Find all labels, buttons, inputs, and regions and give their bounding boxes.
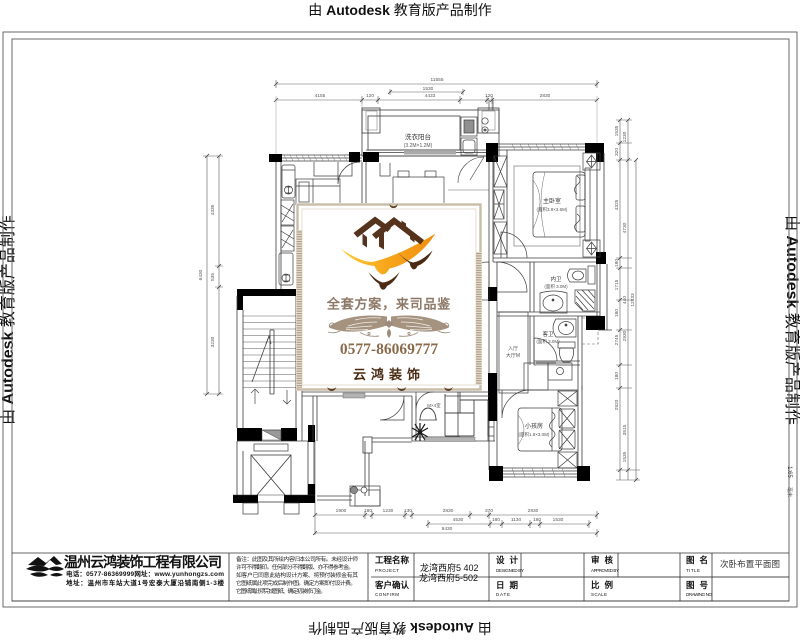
svg-text:DATE: DATE (496, 592, 510, 597)
svg-text:3230: 3230 (210, 336, 216, 347)
svg-text:许可不得翻印。任何部分不得翻版、亦不得参考金。: 许可不得翻印。任何部分不得翻版、亦不得参考金。 (236, 563, 354, 571)
svg-text:4730: 4730 (622, 222, 628, 233)
svg-text:(面积 3.0M): (面积 3.0M) (536, 338, 560, 345)
svg-text:(面积 3.0M): (面积 3.0M) (544, 283, 568, 290)
svg-text:180: 180 (492, 517, 500, 523)
svg-text:主卧室: 主卧室 (543, 197, 561, 205)
svg-text:TITLE: TITLE (686, 568, 700, 573)
svg-text:2930: 2930 (528, 508, 539, 514)
svg-text:它图纸属此项完成后制作图。确定方案即付设计费。: 它图纸属此项完成后制作图。确定方案即付设计费。 (236, 579, 356, 587)
svg-text:龙湾西府5-502: 龙湾西府5-502 (419, 572, 478, 583)
svg-text:180: 180 (614, 259, 620, 267)
svg-text:大厅M: 大厅M (506, 352, 520, 359)
svg-text:设 计: 设 计 (496, 555, 518, 565)
svg-text:(3.2M×1.2M): (3.2M×1.2M) (404, 143, 433, 149)
svg-text:1715: 1715 (614, 279, 620, 290)
svg-text:2920: 2920 (614, 399, 620, 410)
svg-text:(面积1.8×3.0M): (面积1.8×3.0M) (519, 431, 550, 438)
svg-text:客卫: 客卫 (542, 330, 554, 338)
svg-text:备注：此图及其所绘内容归本公司所有。未经设计师: 备注：此图及其所绘内容归本公司所有。未经设计师 (236, 555, 358, 563)
svg-text:9430: 9430 (442, 526, 453, 532)
svg-text:370: 370 (485, 508, 493, 514)
svg-text:180: 180 (364, 508, 372, 514)
svg-text:次卧布置平面图: 次卧布置平面图 (720, 559, 780, 569)
svg-text:180: 180 (614, 309, 620, 317)
svg-text:320: 320 (614, 148, 620, 156)
svg-text:小孩房: 小孩房 (525, 422, 543, 430)
svg-text:M×4室: M×4室 (427, 402, 441, 408)
svg-text:地址：温州市车站大道1号宏泰大厦沿铺南侧1-3楼: 地址：温州市车站大道1号宏泰大厦沿铺南侧1-3楼 (66, 578, 225, 587)
svg-text:12833: 12833 (630, 293, 636, 307)
svg-text:2745: 2745 (614, 334, 620, 345)
svg-text:PROJECT: PROJECT (375, 568, 399, 573)
svg-text:180: 180 (533, 517, 541, 523)
svg-text:电话：0577-86369999网址：www.yunhong: 电话：0577-86369999网址：www.yunhongzs.com (66, 569, 224, 578)
svg-text:535: 535 (210, 273, 216, 281)
svg-text:4325: 4325 (614, 199, 620, 210)
svg-text:日 期: 日 期 (496, 580, 518, 590)
svg-text:4530: 4530 (453, 517, 464, 523)
svg-text:1230: 1230 (383, 508, 394, 514)
svg-text:1530: 1530 (553, 517, 564, 523)
svg-text:全套方案，来司品鉴: 全套方案，来司品鉴 (326, 297, 451, 312)
svg-text:入厅: 入厅 (508, 346, 518, 352)
svg-text:1535: 1535 (614, 125, 620, 136)
svg-text:4155: 4155 (315, 93, 326, 99)
svg-text:客户确认: 客户确认 (374, 580, 409, 590)
svg-text:1530: 1530 (423, 86, 434, 92)
svg-text:由 Autodesk 教育版产品制作: 由 Autodesk 教育版产品制作 (308, 2, 492, 18)
svg-text:如客户已同意此结构设计方案、将预付装修金有其: 如客户已同意此结构设计方案、将预付装修金有其 (236, 571, 358, 579)
svg-text:1230: 1230 (622, 131, 628, 142)
svg-text:2830: 2830 (443, 508, 454, 514)
svg-text:温州云鸿装饰工程有限公司: 温州云鸿装饰工程有限公司 (64, 554, 222, 570)
svg-text:1900: 1900 (336, 508, 347, 514)
svg-text:2930: 2930 (622, 330, 628, 341)
svg-text:11555: 11555 (431, 77, 444, 83)
svg-text:180: 180 (614, 372, 620, 380)
svg-text:DESIGNED BY: DESIGNED BY (496, 568, 524, 573)
svg-text:审 核: 审 核 (591, 555, 613, 565)
svg-text:4433: 4433 (425, 93, 436, 99)
svg-text:2830: 2830 (540, 93, 551, 99)
svg-text:CONFIRM: CONFIRM (375, 592, 399, 597)
svg-text:工程名称: 工程名称 (375, 555, 409, 565)
svg-text:图 名: 图 名 (686, 555, 708, 565)
svg-text:DRAWING NO: DRAWING NO (686, 592, 712, 597)
svg-text:(面积3.9×3.6M): (面积3.9×3.6M) (537, 206, 568, 213)
svg-text:洗衣阳台: 洗衣阳台 (405, 132, 431, 141)
svg-text:6430: 6430 (198, 269, 204, 280)
svg-text:3515: 3515 (622, 424, 628, 435)
svg-text:云鸿装饰: 云鸿装饰 (353, 367, 425, 382)
svg-text:APPROVED BY: APPROVED BY (591, 568, 619, 573)
svg-text:440: 440 (622, 296, 628, 304)
svg-text:120: 120 (485, 93, 493, 99)
svg-text:0577-86069777: 0577-86069777 (340, 341, 438, 358)
svg-text:1130: 1130 (511, 517, 522, 523)
svg-text:由 Autodesk 教育版产品制作: 由 Autodesk 教育版产品制作 (308, 620, 492, 636)
svg-text:龙湾西府5 402: 龙湾西府5 402 (420, 562, 479, 573)
svg-text:1535: 1535 (622, 451, 628, 462)
svg-text:4335: 4335 (210, 204, 216, 215)
svg-text:SCALE: SCALE (591, 592, 607, 597)
svg-text:图 号: 图 号 (686, 580, 708, 590)
svg-text:120: 120 (366, 93, 374, 99)
svg-text:130: 130 (404, 508, 412, 514)
svg-text:比 例: 比 例 (591, 580, 613, 590)
svg-text:内卫: 内卫 (550, 275, 562, 283)
svg-text:它图纸属此项完成图纸、确定初装修订金。: 它图纸属此项完成图纸、确定初装修订金。 (236, 587, 326, 595)
